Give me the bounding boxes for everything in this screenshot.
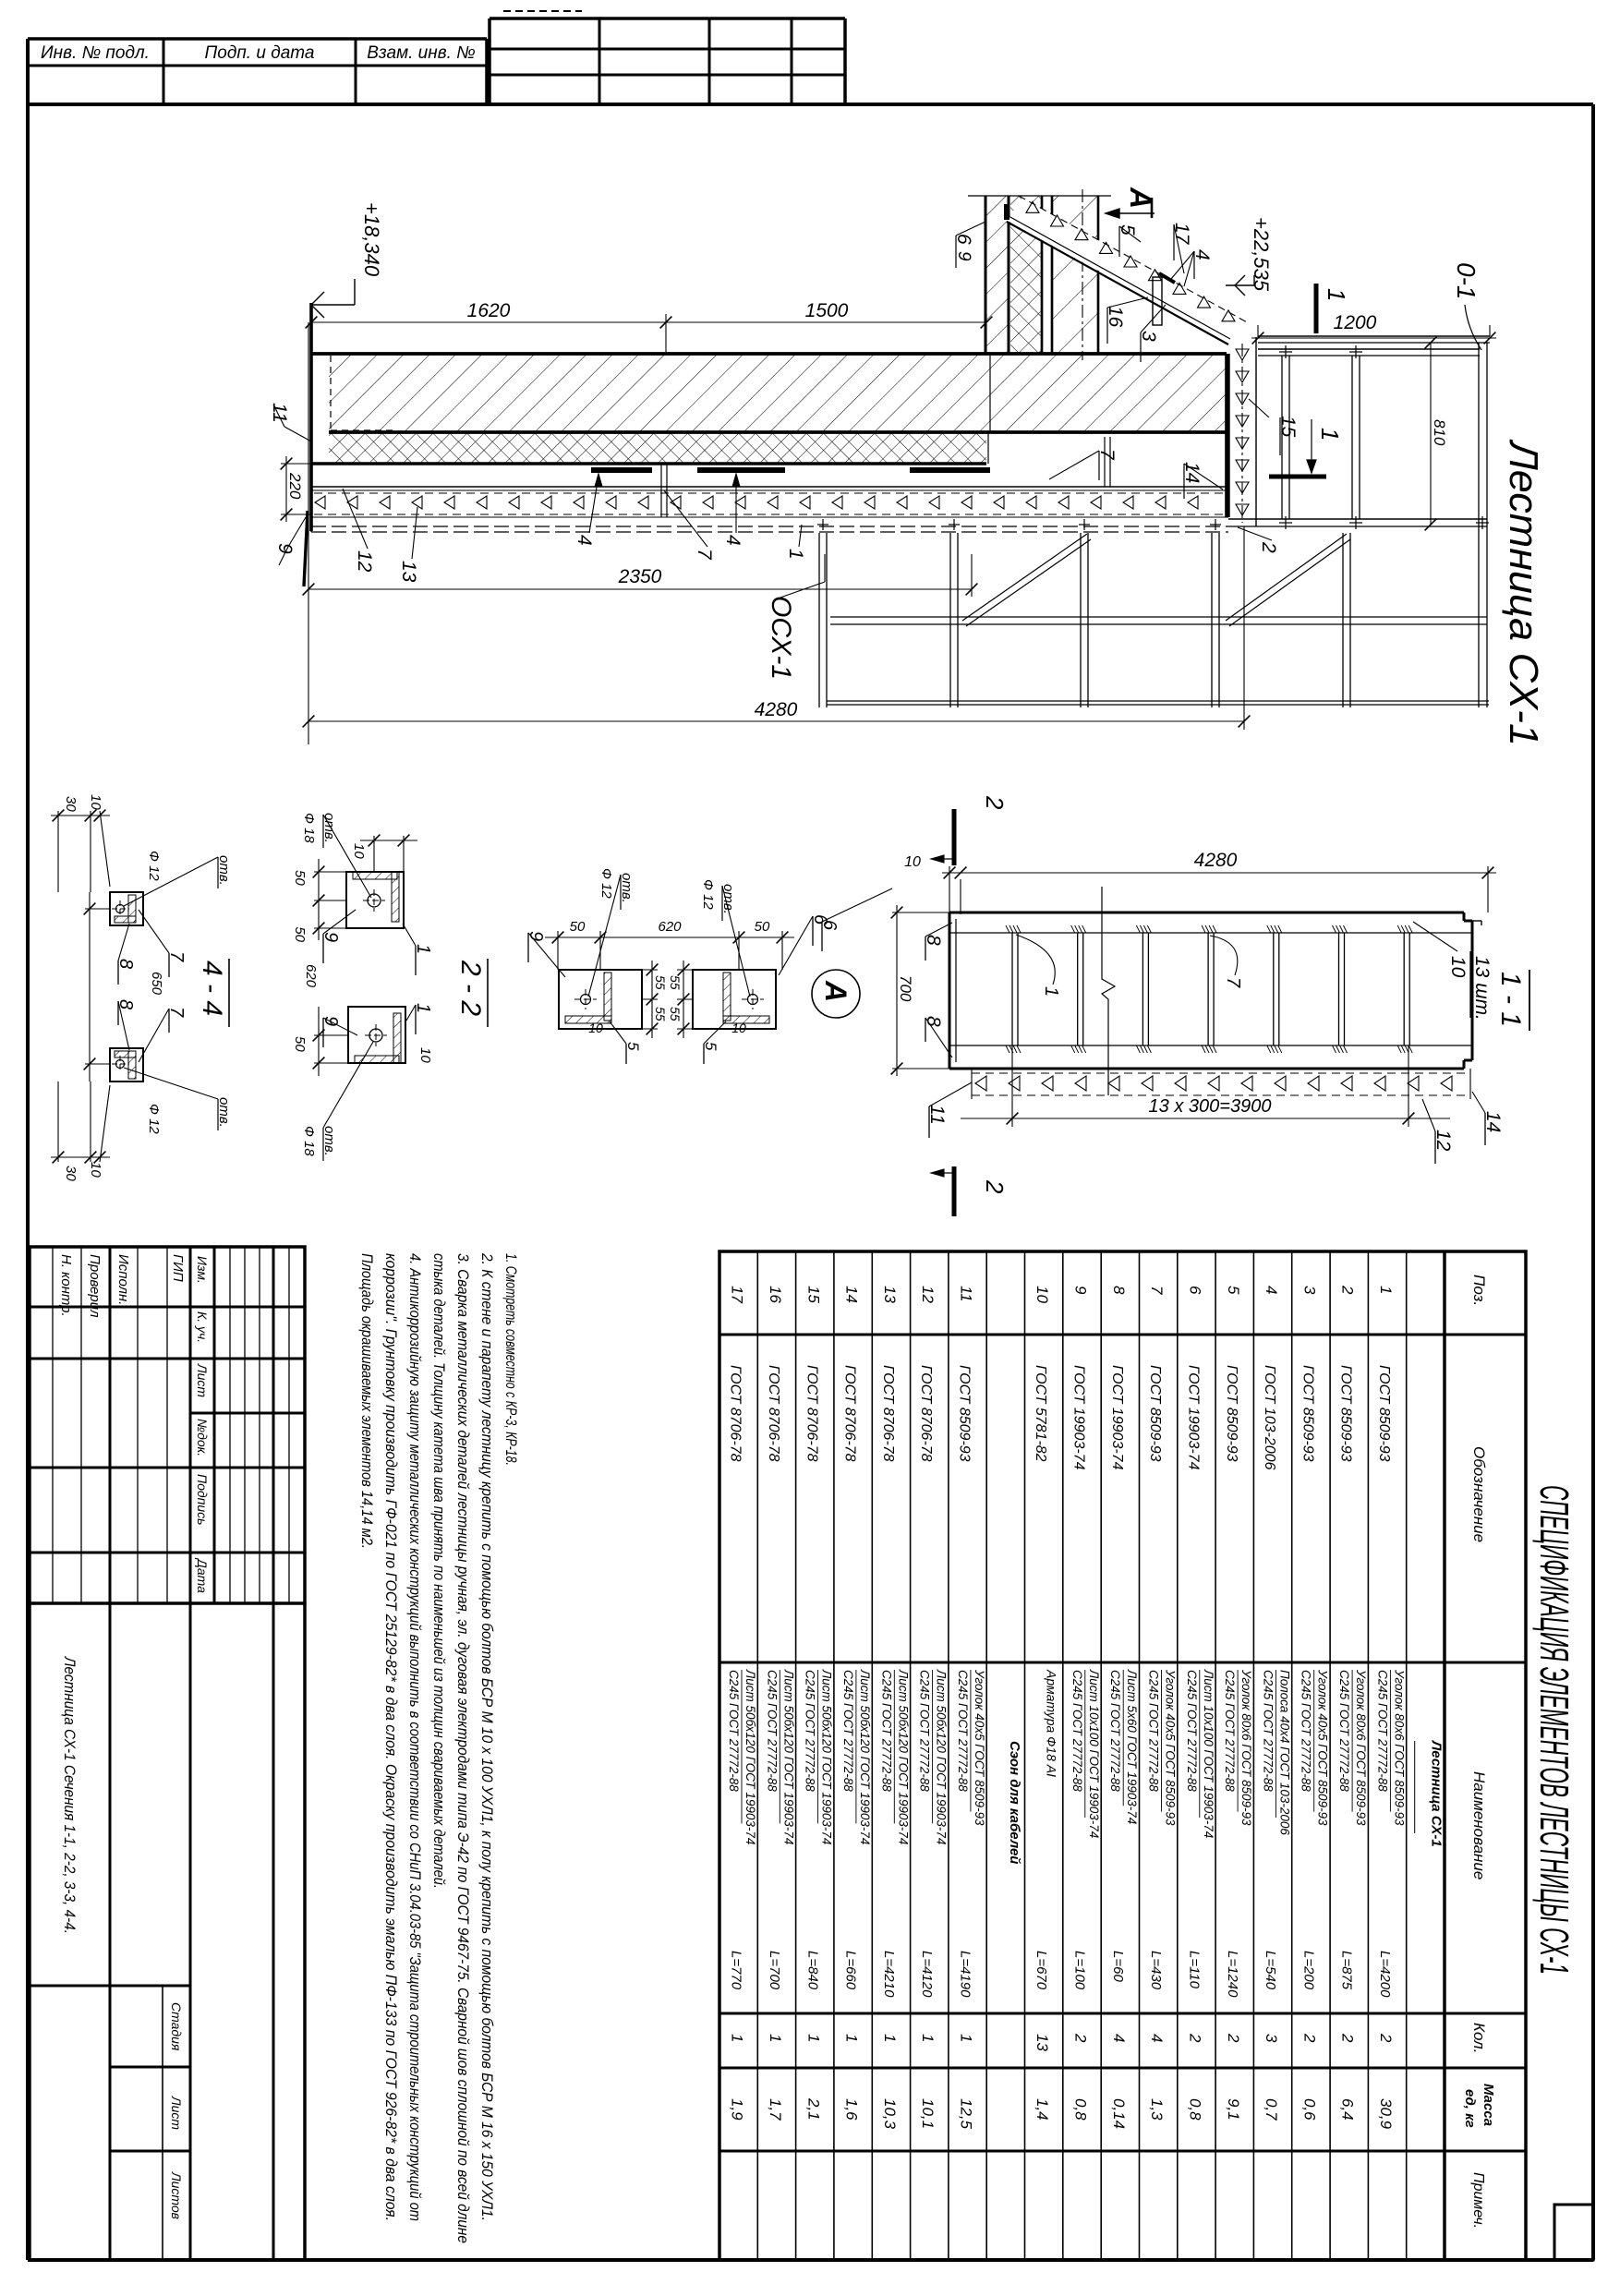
svg-text:9: 9 [1072,1286,1090,1295]
svg-text:L=875: L=875 [1339,1951,1355,1990]
svg-text:А: А [1124,187,1157,209]
svg-text:ГОСТ 19903-74: ГОСТ 19903-74 [1185,1365,1201,1470]
svg-text:2: 2 [1339,1285,1357,1295]
svg-text:Примеч.: Примеч. [1470,2172,1486,2229]
svg-text:№док.: №док. [195,1419,210,1456]
svg-text:2: 2 [1225,2033,1242,2043]
svg-text:Подп. и дата: Подп. и дата [205,43,315,63]
svg-text:Подпись: Подпись [195,1474,210,1526]
svg-text:30: 30 [63,796,79,812]
svg-text:К. уч.: К. уч. [195,1311,210,1343]
svg-text:ГОСТ 8706-78: ГОСТ 8706-78 [842,1365,858,1462]
svg-text:Уголок 80х6 ГОСТ 8509-93: Уголок 80х6 ГОСТ 8509-93 [1392,1669,1406,1826]
svg-text:13 х 300=3900: 13 х 300=3900 [1149,1096,1272,1117]
svg-text:С245 ГОСТ 27772-88: С245 ГОСТ 27772-88 [1337,1670,1351,1792]
svg-text:11: 11 [958,1286,975,1302]
svg-text:Лист 50бх120 ГОСТ 19903-74: Лист 50бх120 ГОСТ 19903-74 [820,1669,834,1844]
svg-text:3: 3 [1263,2034,1280,2043]
svg-text:10: 10 [417,1047,433,1063]
svg-text:15: 15 [804,1286,822,1303]
svg-text:1: 1 [729,2034,746,2042]
svg-text:А: А [819,980,852,1002]
svg-text:1: 1 [958,2034,975,2042]
svg-text:Стадия: Стадия [169,2002,184,2051]
svg-text:Ф 12: Ф 12 [598,868,614,899]
svg-text:50: 50 [292,1036,308,1052]
svg-text:Листов: Листов [169,2171,184,2219]
svg-text:ГОСТ 5781-82: ГОСТ 5781-82 [1033,1365,1048,1462]
svg-text:0,14: 0,14 [1110,2098,1128,2129]
svg-text:1: 1 [881,2034,899,2042]
svg-text:Лист 50бх120 ГОСТ 19903-74: Лист 50бх120 ГОСТ 19903-74 [781,1669,795,1844]
svg-text:L=200: L=200 [1300,1951,1316,1990]
svg-text:1: 1 [1316,428,1344,441]
svg-text:5: 5 [1225,1286,1242,1295]
svg-text:Масса: Масса [1481,2084,1496,2126]
svg-text:620: 620 [303,964,319,988]
svg-text:Уголок 40х5 ГОСТ 8509-93: Уголок 40х5 ГОСТ 8509-93 [1164,1669,1178,1826]
svg-text:С245 ГОСТ 27772-88: С245 ГОСТ 27772-88 [918,1670,932,1792]
svg-text:коррозии". Грунтовку производи: коррозии". Грунтовку производить ГФ-021 … [382,1253,399,2221]
svg-text:Изм.: Изм. [195,1256,210,1284]
svg-text:Лист 50бх120 ГОСТ 19903-74: Лист 50бх120 ГОСТ 19903-74 [935,1669,949,1844]
svg-text:1620: 1620 [467,300,511,321]
svg-text:Уголок 40х5 ГОСТ 8509-93: Уголок 40х5 ГОСТ 8509-93 [1316,1669,1330,1826]
svg-text:17: 17 [729,1286,746,1303]
svg-text:Наименование: Наименование [1470,1771,1488,1879]
svg-text:Проверил: Проверил [87,1254,103,1318]
svg-text:220: 220 [286,472,304,500]
svg-text:С245 ГОСТ 27772-88: С245 ГОСТ 27772-88 [1070,1670,1084,1792]
svg-text:L=540: L=540 [1263,1951,1278,1990]
svg-text:стыка деталей. Толщину катета: стыка деталей. Толщину катета шва принят… [430,1253,447,1889]
svg-text:ГОСТ 8706-78: ГОСТ 8706-78 [728,1365,744,1462]
svg-text:СПЕЦИФИКАЦИЯ ЭЛЕМЕНТОВ ЛЕСТНИЦ: СПЕЦИФИКАЦИЯ ЭЛЕМЕНТОВ ЛЕСТНИЦЫ СХ-1 [1531,1485,1577,1975]
svg-text:Обозначение: Обозначение [1470,1446,1488,1542]
svg-text:Н. контр.: Н. контр. [58,1254,74,1317]
svg-text:L=430: L=430 [1148,1951,1164,1990]
svg-text:ГОСТ 8509-93: ГОСТ 8509-93 [1376,1365,1392,1462]
svg-text:ГОСТ 8706-78: ГОСТ 8706-78 [804,1365,819,1462]
svg-text:10: 10 [88,1162,103,1178]
svg-text:Инв. № подл.: Инв. № подл. [41,43,150,63]
svg-text:0,6: 0,6 [1300,2098,1318,2121]
svg-text:L=660: L=660 [843,1951,859,1990]
svg-text:2: 2 [1072,2033,1090,2043]
svg-text:10: 10 [904,854,921,870]
svg-text:1500: 1500 [805,300,849,321]
svg-text:Лестница СХ-1: Лестница СХ-1 [1429,1740,1445,1847]
svg-text:С245 ГОСТ 27772-88: С245 ГОСТ 27772-88 [1261,1670,1275,1792]
svg-text:Лестница СХ-1: Лестница СХ-1 [1501,439,1546,746]
svg-text:9,1: 9,1 [1225,2098,1242,2121]
svg-text:12,5: 12,5 [958,2098,975,2130]
svg-text:6: 6 [1186,1286,1203,1295]
svg-text:Ф 12: Ф 12 [146,1104,162,1134]
svg-text:55: 55 [653,1007,668,1021]
svg-text:С245 ГОСТ 27772-88: С245 ГОСТ 27772-88 [765,1670,779,1792]
svg-text:620: 620 [658,919,682,935]
svg-text:ГОСТ 8706-78: ГОСТ 8706-78 [766,1365,781,1462]
svg-text:4: 4 [1110,2034,1128,2042]
svg-text:1: 1 [1323,288,1350,301]
svg-text:4: 4 [722,535,744,546]
svg-text:ГОСТ 8509-93: ГОСТ 8509-93 [1224,1365,1239,1462]
svg-text:1,6: 1,6 [843,2098,861,2121]
svg-text:2: 2 [1377,2033,1395,2043]
svg-text:С245 ГОСТ 27772-88: С245 ГОСТ 27772-88 [1223,1670,1237,1792]
svg-text:810: 810 [1431,419,1448,446]
svg-text:1200: 1200 [1334,312,1377,333]
svg-text:L=110: L=110 [1186,1951,1202,1989]
svg-text:10: 10 [351,843,367,859]
svg-text:30: 30 [63,1166,79,1181]
svg-text:6,4: 6,4 [1339,2098,1357,2121]
svg-text:Лист 10х100 ГОСТ 19903-74: Лист 10х100 ГОСТ 19903-74 [1087,1669,1101,1838]
svg-text:ГОСТ 103-2006: ГОСТ 103-2006 [1262,1365,1277,1470]
svg-text:2 - 2: 2 - 2 [455,960,486,1016]
svg-text:Взам. инв. №: Взам. инв. № [367,43,476,63]
svg-text:С245 ГОСТ 27772-88: С245 ГОСТ 27772-88 [1147,1670,1161,1792]
svg-text:2350: 2350 [618,566,662,587]
svg-text:10: 10 [731,1021,746,1035]
svg-text:1: 1 [785,549,806,560]
svg-text:1,9: 1,9 [729,2098,746,2121]
svg-text:2,1: 2,1 [804,2097,822,2121]
svg-text:L=4120: L=4120 [919,1951,935,1998]
svg-text:1: 1 [1041,986,1061,997]
svg-text:Ф 12: Ф 12 [146,851,162,881]
svg-text:50: 50 [755,919,770,935]
svg-text:ГОСТ 8706-78: ГОСТ 8706-78 [880,1365,896,1462]
svg-text:Уголок 40х5 ГОСТ 8509-93: Уголок 40х5 ГОСТ 8509-93 [973,1669,986,1826]
svg-text:ГОСТ 19903-74: ГОСТ 19903-74 [1071,1365,1087,1470]
svg-text:Лист: Лист [195,1363,210,1397]
svg-text:Ф 12: Ф 12 [700,879,716,910]
svg-text:9: 9 [954,251,973,261]
svg-text:7: 7 [1223,977,1243,988]
svg-text:3. Сварка металлических детале: 3. Сварка металлических деталей лестницы… [454,1253,471,2243]
svg-text:L=1240: L=1240 [1225,1951,1240,1998]
svg-text:1: 1 [919,2034,937,2042]
svg-text:Сэон для кабелей: Сэон для кабелей [1007,1741,1022,1864]
svg-text:Лестница СХ-1 Сечения 1-1, 2-: Лестница СХ-1 Сечения 1-1, 2-2, 3-3, 4-4… [61,1656,79,1934]
svg-text:ГОСТ 8509-93: ГОСТ 8509-93 [1338,1365,1354,1462]
svg-text:10: 10 [1034,1286,1051,1303]
svg-text:14: 14 [843,1286,861,1303]
svg-text:ГОСТ 8509-93: ГОСТ 8509-93 [1147,1365,1163,1462]
svg-text:L=4210: L=4210 [881,1951,897,1998]
svg-text:2. К стене и парапету лестницу: 2. К стене и парапету лестницу крепить с… [478,1252,495,2221]
svg-text:13 шт.: 13 шт. [1471,956,1493,1021]
svg-text:С245 ГОСТ 27772-88: С245 ГОСТ 27772-88 [727,1670,741,1792]
svg-text:2: 2 [1300,2033,1318,2043]
svg-text:Лист 50бх120 ГОСТ 19903-74: Лист 50бх120 ГОСТ 19903-74 [896,1669,910,1844]
svg-text:55: 55 [668,975,683,990]
svg-text:10: 10 [1447,956,1469,978]
svg-text:5: 5 [624,1042,642,1051]
svg-text:0,8: 0,8 [1186,2098,1203,2121]
svg-text:Лист 50бх120 ГОСТ 19903-74: Лист 50бх120 ГОСТ 19903-74 [744,1669,757,1844]
svg-text:10: 10 [588,1021,603,1035]
svg-text:С245 ГОСТ 27772-88: С245 ГОСТ 27772-88 [956,1670,970,1792]
svg-text:Полоса 40х4 ГОСТ 103-2006: Полоса 40х4 ГОСТ 103-2006 [1277,1670,1291,1835]
svg-text:30,9: 30,9 [1377,2098,1395,2130]
svg-text:Дата: Дата [195,1557,210,1593]
svg-text:10,1: 10,1 [919,2098,937,2129]
svg-text:1. Смотреть совместно с КР-3,: 1. Смотреть совместно с КР-3, КР-18. [502,1253,519,1466]
svg-text:С245 ГОСТ 27772-88: С245 ГОСТ 27772-88 [1375,1670,1389,1792]
svg-text:2: 2 [981,795,1009,810]
svg-text:0,7: 0,7 [1263,2098,1280,2121]
svg-text:Ф 18: Ф 18 [301,813,317,843]
svg-text:Лист 10х100 ГОСТ 19903-74: Лист 10х100 ГОСТ 19903-74 [1202,1669,1215,1838]
svg-text:13: 13 [1034,2034,1051,2051]
svg-text:2: 2 [981,1179,1009,1194]
svg-text:1,3: 1,3 [1148,2098,1166,2121]
svg-text:Уголок 80х6 ГОСТ 8509-93: Уголок 80х6 ГОСТ 8509-93 [1239,1669,1253,1826]
svg-text:1,7: 1,7 [767,2098,784,2121]
svg-text:L=60: L=60 [1110,1951,1126,1982]
svg-text:Лист 50бх120 ГОСТ 19903-74: Лист 50бх120 ГОСТ 19903-74 [858,1669,872,1844]
svg-text:Лист 5х60 ГОСТ 19903-74: Лист 5х60 ГОСТ 19903-74 [1125,1669,1139,1824]
svg-text:10: 10 [88,794,103,810]
svg-text:Кол.: Кол. [1470,2023,1488,2053]
svg-text:L=4200: L=4200 [1377,1951,1393,1998]
svg-text:1: 1 [767,2034,784,2042]
svg-text:L=670: L=670 [1034,1951,1049,1990]
svg-text:50: 50 [292,870,308,886]
svg-text:55: 55 [668,1007,683,1021]
svg-text:2: 2 [1339,2033,1357,2043]
svg-text:ГОСТ 8706-78: ГОСТ 8706-78 [918,1365,934,1462]
svg-text:11: 11 [269,403,290,423]
svg-text:13: 13 [881,1286,899,1303]
svg-text:ГОСТ 8509-93: ГОСТ 8509-93 [957,1365,973,1462]
svg-text:650: 650 [149,972,164,996]
svg-text:ед, кг: ед, кг [1462,2089,1478,2128]
svg-text:Поз.: Поз. [1470,1275,1488,1306]
svg-text:4280: 4280 [755,699,798,720]
svg-text:L=700: L=700 [767,1951,782,1990]
svg-text:+18,340: +18,340 [360,202,383,277]
svg-text:1,4: 1,4 [1034,2098,1051,2121]
svg-text:4: 4 [1263,1286,1280,1294]
svg-text:8: 8 [1110,1286,1128,1295]
svg-text:1: 1 [804,2034,822,2042]
svg-text:13: 13 [398,561,419,583]
svg-text:3: 3 [1300,1286,1318,1295]
svg-text:ГОСТ 8509-93: ГОСТ 8509-93 [1300,1365,1315,1462]
svg-text:50: 50 [292,926,308,942]
svg-text:С245 ГОСТ 27772-88: С245 ГОСТ 27772-88 [1108,1670,1122,1792]
svg-text:L=840: L=840 [804,1951,820,1990]
svg-text:С245 ГОСТ 27772-88: С245 ГОСТ 27772-88 [1300,1670,1313,1792]
svg-text:Исполн.: Исполн. [115,1254,131,1305]
svg-text:10,3: 10,3 [881,2098,899,2130]
svg-text:2: 2 [1258,541,1279,553]
svg-text:ГИП: ГИП [170,1254,186,1282]
svg-text:Ф 18: Ф 18 [301,1126,317,1156]
svg-text:2: 2 [1186,2033,1203,2043]
svg-text:4: 4 [1148,2034,1166,2042]
svg-text:50: 50 [570,919,586,935]
svg-text:L=770: L=770 [729,1951,744,1990]
svg-text:С245 ГОСТ 27772-88: С245 ГОСТ 27772-88 [879,1670,893,1792]
svg-text:С245 ГОСТ 27772-88: С245 ГОСТ 27772-88 [841,1670,855,1792]
svg-text:ОСХ-1: ОСХ-1 [766,596,796,680]
svg-text:L=100: L=100 [1072,1951,1088,1990]
svg-text:12: 12 [354,550,375,573]
svg-text:Уголок 80х6 ГОСТ 8509-93: Уголок 80х6 ГОСТ 8509-93 [1354,1669,1368,1826]
svg-text:Арматура Ф18 АI: Арматура Ф18 АI [1045,1669,1059,1777]
svg-text:+22,535: +22,535 [1250,217,1273,292]
svg-text:L=4190: L=4190 [958,1951,973,1998]
svg-text:Площадь окрашиваемых элементов: Площадь окрашиваемых элементов 14,14 м2. [358,1253,375,1549]
svg-text:12: 12 [919,1286,937,1303]
svg-text:Лист: Лист [169,2096,184,2130]
svg-text:С245 ГОСТ 27772-88: С245 ГОСТ 27772-88 [1185,1670,1199,1792]
svg-text:4: 4 [574,535,595,546]
svg-text:0-1: 0-1 [1452,262,1481,299]
svg-text:7: 7 [694,549,715,561]
svg-text:4280: 4280 [1194,850,1238,871]
svg-text:1 - 1: 1 - 1 [1495,972,1526,1027]
svg-text:700: 700 [897,975,914,1002]
svg-text:16: 16 [767,1286,784,1303]
svg-text:1: 1 [843,2034,861,2042]
svg-text:4. Антикоррозийную защиту мета: 4. Антикоррозийную защиту металлических … [406,1253,423,2221]
svg-text:55: 55 [653,975,668,990]
svg-text:С245 ГОСТ 27772-88: С245 ГОСТ 27772-88 [804,1670,817,1792]
svg-text:4 - 4: 4 - 4 [197,961,227,1016]
svg-text:ГОСТ 19903-74: ГОСТ 19903-74 [1109,1365,1125,1470]
svg-text:7: 7 [1148,1286,1166,1295]
svg-text:1: 1 [1377,1286,1395,1294]
svg-text:0,8: 0,8 [1072,2098,1090,2121]
